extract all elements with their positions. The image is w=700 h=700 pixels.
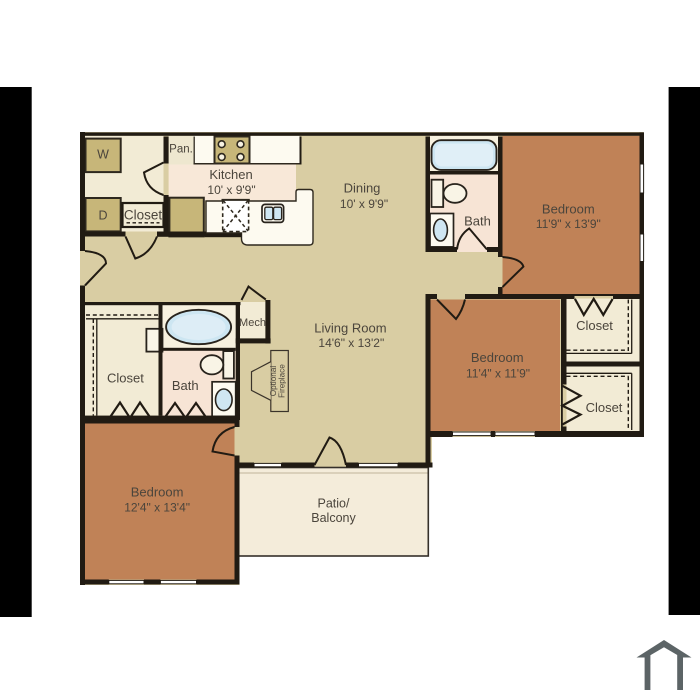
svg-text:10' x 9'9": 10' x 9'9" <box>207 183 255 197</box>
svg-text:Bath: Bath <box>172 378 199 393</box>
svg-text:Bedroom: Bedroom <box>471 350 524 365</box>
svg-text:Living Room: Living Room <box>314 321 386 336</box>
svg-text:D: D <box>98 209 107 223</box>
svg-text:11'4" x 11'9": 11'4" x 11'9" <box>466 367 530 381</box>
svg-text:Closet: Closet <box>576 318 613 333</box>
svg-text:14'6" x 13'2": 14'6" x 13'2" <box>318 336 384 350</box>
svg-text:Mech: Mech <box>239 317 266 329</box>
svg-text:Dining: Dining <box>344 181 381 196</box>
svg-text:Closet: Closet <box>124 208 163 223</box>
svg-text:Closet: Closet <box>107 371 144 386</box>
svg-text:Pan.: Pan. <box>169 144 193 156</box>
svg-text:Patio/: Patio/ <box>318 497 350 511</box>
svg-text:Bedroom: Bedroom <box>131 485 184 500</box>
svg-text:Bath: Bath <box>464 214 491 229</box>
svg-text:12'4" x 13'4": 12'4" x 13'4" <box>124 501 190 515</box>
svg-text:Bedroom: Bedroom <box>542 202 595 217</box>
svg-text:Fireplace: Fireplace <box>278 364 287 398</box>
svg-text:10' x 9'9": 10' x 9'9" <box>340 197 388 211</box>
svg-text:Balcony: Balcony <box>311 511 356 525</box>
svg-text:Kitchen: Kitchen <box>209 167 252 182</box>
svg-text:11'9" x 13'9": 11'9" x 13'9" <box>536 217 601 231</box>
svg-text:W: W <box>97 148 109 162</box>
svg-text:Closet: Closet <box>586 400 623 415</box>
